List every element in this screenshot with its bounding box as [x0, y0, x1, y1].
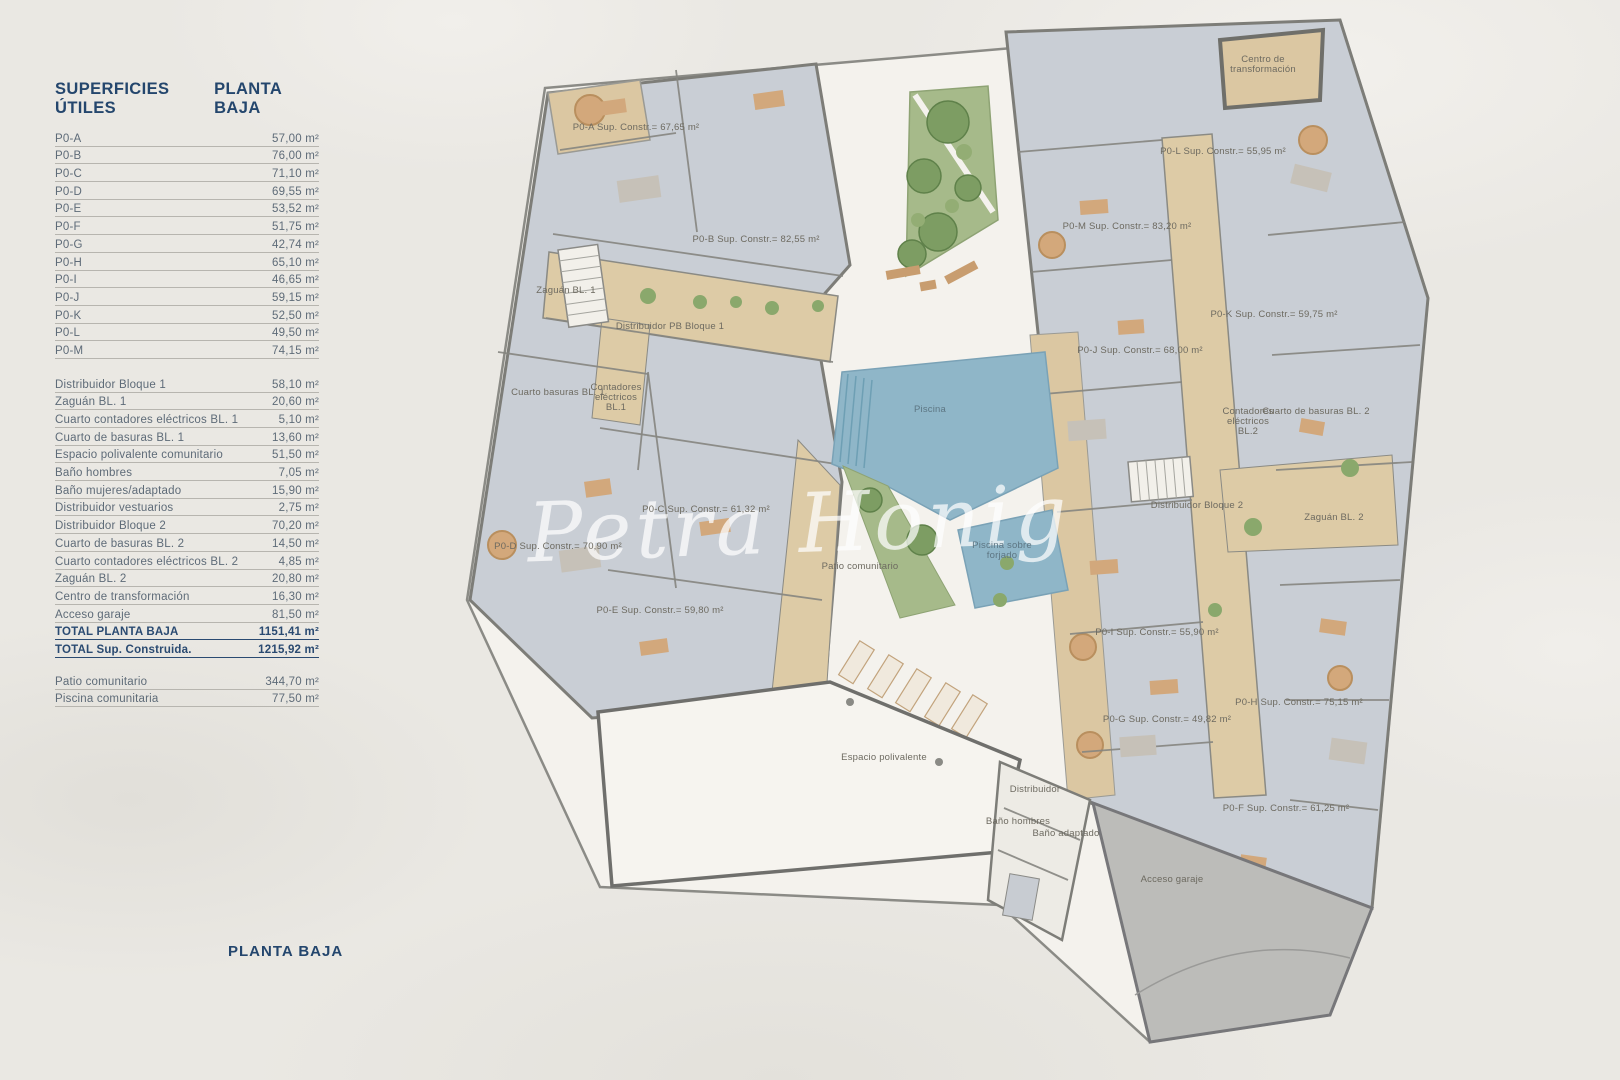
- plan-room-label: Cuarto de basuras BL. 2: [1262, 406, 1370, 417]
- planter: [693, 295, 707, 309]
- plan-room-label: P0-D Sup. Constr.= 70,90 m²: [494, 541, 622, 552]
- plan-room-label: Acceso garaje: [1141, 874, 1204, 885]
- plan-room-label: Zaguán BL. 2: [1304, 512, 1363, 523]
- plan-room-label: Patio comunitario: [822, 561, 899, 572]
- planter: [1244, 518, 1262, 536]
- plan-room-label: P0-A Sup. Constr.= 67,65 m²: [573, 122, 700, 133]
- plan-room-label: P0-C Sup. Constr.= 61,32 m²: [642, 504, 770, 515]
- plan-room-label: P0-M Sup. Constr.= 83,20 m²: [1063, 221, 1192, 232]
- plan-room-label: Piscina: [914, 404, 947, 415]
- terrace-table: [1299, 126, 1327, 154]
- plan-room-label: P0-K Sup. Constr.= 59,75 m²: [1210, 309, 1337, 320]
- block-2-corridor-branch: [1220, 455, 1398, 552]
- planter: [812, 300, 824, 312]
- planter: [1341, 459, 1359, 477]
- terrace-table: [1328, 666, 1352, 690]
- plan-room-label: P0-F Sup. Constr.= 61,25 m²: [1223, 803, 1350, 814]
- stairs: [1128, 457, 1193, 502]
- planter: [730, 296, 742, 308]
- plan-room-label: P0-L Sup. Constr.= 55,95 m²: [1160, 146, 1286, 157]
- column: [846, 698, 854, 706]
- planter: [640, 288, 656, 304]
- plan-room-label: P0-E Sup. Constr.= 59,80 m²: [596, 605, 723, 616]
- terrace-table: [1039, 232, 1065, 258]
- terrace-table: [1077, 732, 1103, 758]
- plan-room-label: Zaguán BL. 1: [536, 285, 595, 296]
- plan-room-label: Baño hombres: [986, 816, 1050, 827]
- plan-room-label: Espacio polivalente: [841, 752, 927, 763]
- plan-room-label: Distribuidor: [1010, 784, 1060, 795]
- plan-room-label: P0-J Sup. Constr.= 68,00 m²: [1077, 345, 1203, 356]
- planter: [1208, 603, 1222, 617]
- plan-room-label: Distribuidor Bloque 2: [1151, 500, 1243, 511]
- planter: [765, 301, 779, 315]
- terrace-table: [1070, 634, 1096, 660]
- watermark: Petra Honig: [524, 468, 1073, 582]
- bush: [993, 593, 1007, 607]
- plan-room-label: P0-G Sup. Constr.= 49,82 m²: [1103, 714, 1231, 725]
- plan-room-label: Baño adaptado: [1032, 828, 1099, 839]
- column: [935, 758, 943, 766]
- floor-plan: Petra Honig P0-A Sup. Constr.= 67,65 m²P…: [0, 0, 1620, 1080]
- plan-room-label: P0-I Sup. Constr.= 55,90 m²: [1095, 627, 1218, 638]
- plan-room-label: P0-H Sup. Constr.= 75,15 m²: [1235, 697, 1363, 708]
- plan-room-label: P0-B Sup. Constr.= 82,55 m²: [692, 234, 819, 245]
- plan-room-label: Distribuidor PB Bloque 1: [616, 321, 724, 332]
